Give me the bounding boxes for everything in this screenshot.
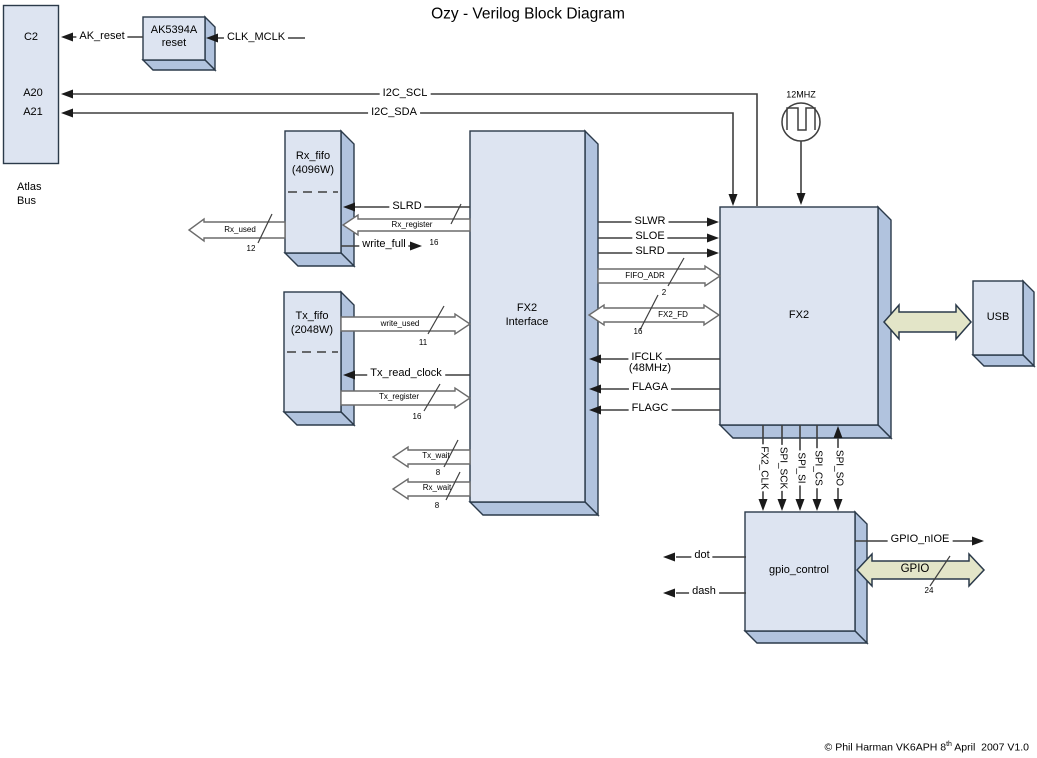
atlas-pin-c2: C2 — [24, 31, 38, 45]
write-used-width: 11 — [419, 338, 427, 348]
rx-wait-width: 8 — [435, 501, 439, 511]
fx2-fd-label: FX2_FD — [658, 310, 688, 320]
i2c-sda-label: I2C_SDA — [368, 106, 420, 120]
tx-fifo-label-line2: (2048W) — [291, 324, 333, 338]
diagram-graphics — [0, 0, 1037, 758]
ifclk-sub-label: (48MHz) — [626, 362, 674, 376]
rx-register-label: Rx_register — [392, 220, 433, 230]
rx-used-width: 12 — [247, 244, 256, 254]
fx2-fd-bus — [589, 305, 719, 325]
atlas-pin-a20: A20 — [23, 87, 43, 101]
fx2-interface-label-line2: Interface — [506, 316, 549, 330]
tx-wait-width: 8 — [436, 468, 440, 478]
atlas-caption-line2: Bus — [17, 195, 36, 209]
copyright: © Phil Harman VK6APH 8th April 2007 V1.0 — [825, 741, 1029, 754]
rx-used-label: Rx_used — [224, 225, 256, 235]
atlas-pin-a21: A21 — [23, 106, 43, 120]
clk-mclk-label: CLK_MCLK — [224, 31, 288, 45]
copyright-suffix: April 2007 V1.0 — [952, 742, 1029, 754]
ak-reset-label: AK_reset — [76, 30, 127, 44]
flagc-label: FLAGC — [629, 402, 672, 416]
rx-fifo-label-line1: Rx_fifo — [296, 150, 330, 164]
write-used-label: write_used — [381, 319, 420, 329]
tx-read-clock-label: Tx_read_clock — [367, 367, 445, 381]
fx2-fd-width: 16 — [634, 327, 643, 337]
spi-so-label: SPI_SO — [832, 448, 845, 488]
rx-fifo-label-line2: (4096W) — [292, 164, 334, 178]
fx2-interface-label-line1: FX2 — [517, 302, 537, 316]
dash-label: dash — [689, 585, 719, 599]
fx2-clk-label: FX2_CLK — [757, 444, 770, 491]
gpio-nioe-label: GPIO_nIOE — [888, 533, 953, 547]
gpio-control-label: gpio_control — [769, 564, 829, 578]
rx-wait-label: Rx_wait — [423, 483, 451, 493]
fifo-adr-width: 2 — [662, 288, 666, 298]
fifo-adr-label: FIFO_ADR — [625, 271, 665, 281]
diagram-canvas: Ozy - Verilog Block Diagram C2 A20 A21 A… — [0, 0, 1037, 758]
ak5394a-label-line2: reset — [162, 37, 186, 51]
i2c-scl-label: I2C_SCL — [380, 87, 431, 101]
copyright-prefix: © Phil Harman VK6APH 8 — [825, 742, 947, 754]
fx2-usb-bus — [884, 305, 971, 339]
tx-register-width: 16 — [413, 412, 422, 422]
atlas-bus-block — [4, 6, 59, 164]
tx-register-label: Tx_register — [379, 392, 419, 402]
tx-wait-label: Tx_wait — [422, 451, 450, 461]
write-full-label: write_full — [359, 238, 408, 252]
gpio-bus-width: 24 — [925, 586, 934, 596]
tx-fifo-label-line1: Tx_fifo — [295, 310, 328, 324]
spi-sck-label: SPI_SCK — [776, 445, 789, 491]
usb-label: USB — [987, 311, 1010, 325]
spi-si-label: SPI_SI — [794, 450, 807, 485]
slrd-label: SLRD — [632, 245, 667, 259]
oscillator-wire — [797, 141, 806, 205]
rx-register-width: 16 — [430, 238, 439, 248]
slrd-fifo-label: SLRD — [389, 200, 424, 214]
flaga-label: FLAGA — [629, 381, 671, 395]
atlas-caption-line1: Atlas — [17, 181, 41, 195]
sloe-label: SLOE — [632, 230, 667, 244]
fx2-label: FX2 — [789, 309, 809, 323]
dot-label: dot — [691, 549, 712, 563]
spi-cs-label: SPI_CS — [811, 448, 824, 488]
oscillator-icon — [782, 103, 820, 141]
ak5394a-label-line1: AK5394A — [151, 24, 197, 38]
page-title: Ozy - Verilog Block Diagram — [431, 4, 625, 23]
gpio-bus-label: GPIO — [901, 562, 930, 576]
slwr-label: SLWR — [632, 215, 669, 229]
oscillator-label: 12MHZ — [786, 89, 816, 100]
i2c-sda-wire — [61, 109, 738, 207]
